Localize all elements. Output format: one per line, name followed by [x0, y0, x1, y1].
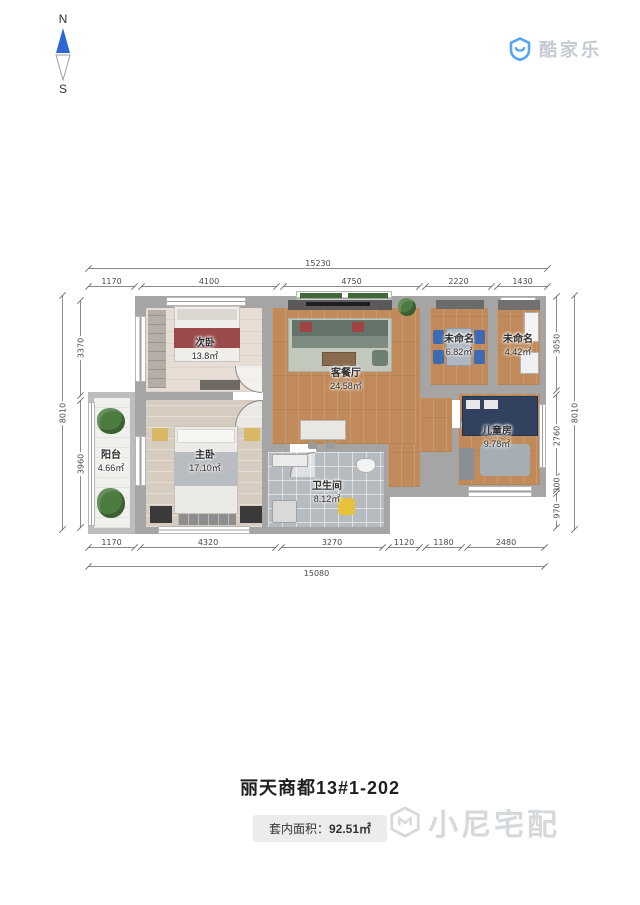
dim-right-outer: 8010 [574, 295, 575, 530]
dining-chair-3 [474, 330, 485, 344]
sofa-cushion-1 [300, 322, 312, 332]
door-gap-kids-room [452, 400, 460, 428]
pillow-kids-2 [484, 400, 498, 409]
washer [272, 500, 297, 523]
dim-top-seg-3: 4750 [283, 286, 420, 287]
kitchen-island [300, 420, 346, 440]
dim-bottom-seg-6: 2480 [467, 547, 545, 548]
window-balcony-left [88, 402, 95, 526]
dim-left-seg-1: 3370 [80, 300, 81, 396]
page: { "compass": { "north_label": "N", "sout… [0, 0, 640, 905]
room-area: 6.82㎡ [444, 346, 474, 358]
brand-name: 酷家乐 [539, 36, 602, 62]
label-bathroom: 卫生间 8.12㎡ [312, 481, 342, 505]
window-master-bottom [158, 526, 250, 534]
pillows-second-bedroom [177, 309, 237, 320]
dim-bottom-seg-3: 3270 [281, 547, 383, 548]
nightstand-master-left [152, 428, 168, 441]
window-second-bedroom-left [135, 316, 146, 382]
wardrobe-master [178, 514, 236, 525]
room-name: 卫生间 [312, 481, 342, 493]
label-living-dining: 客餐厅 24.58㎡ [330, 368, 362, 392]
room-name: 次卧 [192, 338, 219, 350]
kujiale-logo: 酷家乐 [508, 36, 602, 62]
window-second-bedroom-top [166, 297, 246, 306]
label-unnamed-1: 未命名 6.82㎡ [444, 334, 474, 358]
pillows-master [177, 429, 235, 443]
room-area: 4.66㎡ [98, 462, 125, 474]
toilet [356, 458, 376, 473]
bench-master-right [240, 506, 262, 523]
coffee-table [322, 352, 356, 366]
dim-bottom-seg-5: 1180 [425, 547, 462, 548]
kujiale-shield-icon [508, 37, 532, 61]
dining-chair-2 [433, 350, 444, 364]
label-kids-room: 儿童房 9.78㎡ [482, 426, 512, 450]
room-name: 主卧 [189, 450, 221, 462]
label-balcony: 阳台 4.66㎡ [98, 450, 125, 474]
tv-screen [306, 302, 370, 306]
room-hallway [420, 398, 452, 452]
compass-north-label: N [48, 12, 78, 26]
counter-unnamed2 [498, 300, 540, 310]
balcony-sliding-door [135, 436, 146, 486]
area-label: 套内面积： [269, 822, 329, 836]
room-area: 24.58㎡ [330, 380, 362, 392]
dim-right-seg-2: 2760 [556, 394, 557, 477]
room-area: 17.10㎡ [189, 462, 221, 474]
dim-top-seg-5: 1430 [497, 286, 548, 287]
dim-right-seg-1: 3050 [556, 296, 557, 391]
door-gap-bedrooms [233, 392, 263, 400]
bay-planter-right [348, 293, 388, 298]
dim-bottom-seg-2: 4320 [140, 547, 276, 548]
compass-south-label: S [48, 82, 78, 96]
room-area: 8.12㎡ [312, 493, 342, 505]
dim-bottom-seg-4: 1120 [388, 547, 420, 548]
room-area: 9.78㎡ [482, 438, 512, 450]
desk-kids-room [459, 448, 474, 480]
room-living-dining-ext [388, 444, 420, 487]
dim-top-seg-1: 1170 [88, 286, 135, 287]
room-name: 阳台 [98, 450, 125, 462]
window-kids-bottom [468, 486, 532, 497]
island-stool-2 [326, 442, 335, 449]
room-name: 客餐厅 [330, 368, 362, 380]
compass: N S [48, 12, 78, 96]
sideboard-unnamed1 [436, 300, 484, 309]
room-area: 4.42㎡ [503, 346, 533, 358]
plant-balcony-bottom [97, 488, 125, 518]
watermark-text: 小尼宅配 [428, 800, 560, 844]
room-name: 儿童房 [482, 426, 512, 438]
plant-balcony-top [97, 408, 125, 434]
bay-planter-left [300, 293, 342, 298]
nightstand-master-right [244, 428, 260, 441]
room-name: 未命名 [503, 334, 533, 346]
sofa-cushion-2 [352, 322, 364, 332]
dim-top-seg-2: 4100 [141, 286, 277, 287]
wardrobe-second-bedroom [148, 310, 166, 388]
dim-bottom-total: 15080 [88, 566, 545, 567]
label-second-bedroom: 次卧 13.8㎡ [192, 338, 219, 362]
area-box: 套内面积：92.51㎡ [253, 815, 387, 842]
plant-living-corner [398, 298, 416, 316]
compass-needle-icon [51, 26, 75, 82]
bench-master-left [150, 506, 172, 523]
dim-right-seg-3: 300 [556, 479, 557, 491]
plan-title: 丽天商都13#1-202 [0, 774, 640, 800]
sofa-seat [292, 336, 388, 348]
dining-chair-4 [474, 350, 485, 364]
dim-top-seg-4: 2220 [425, 286, 492, 287]
armchair [372, 350, 388, 366]
label-unnamed-2: 未命名 4.42㎡ [503, 334, 533, 358]
room-area: 13.8㎡ [192, 350, 219, 362]
dim-left-outer: 8010 [62, 295, 63, 530]
watermark: 小尼宅配 [388, 800, 560, 844]
label-master-bedroom: 主卧 17.10㎡ [189, 450, 221, 474]
dim-bottom-seg-1: 1170 [88, 547, 135, 548]
room-name: 未命名 [444, 334, 474, 346]
window-kids-right [539, 404, 546, 468]
island-stool-1 [308, 442, 317, 449]
watermark-logo-icon [388, 805, 422, 839]
dim-left-seg-2: 3960 [80, 400, 81, 528]
area-value: 92.51㎡ [329, 822, 371, 836]
pillow-kids-1 [466, 400, 480, 409]
dim-right-seg-4: 970 [556, 493, 557, 528]
dim-top-total: 15230 [88, 268, 548, 269]
bathroom-vanity [272, 454, 308, 467]
dresser-second-bedroom [200, 380, 240, 390]
dining-chair-1 [433, 330, 444, 344]
